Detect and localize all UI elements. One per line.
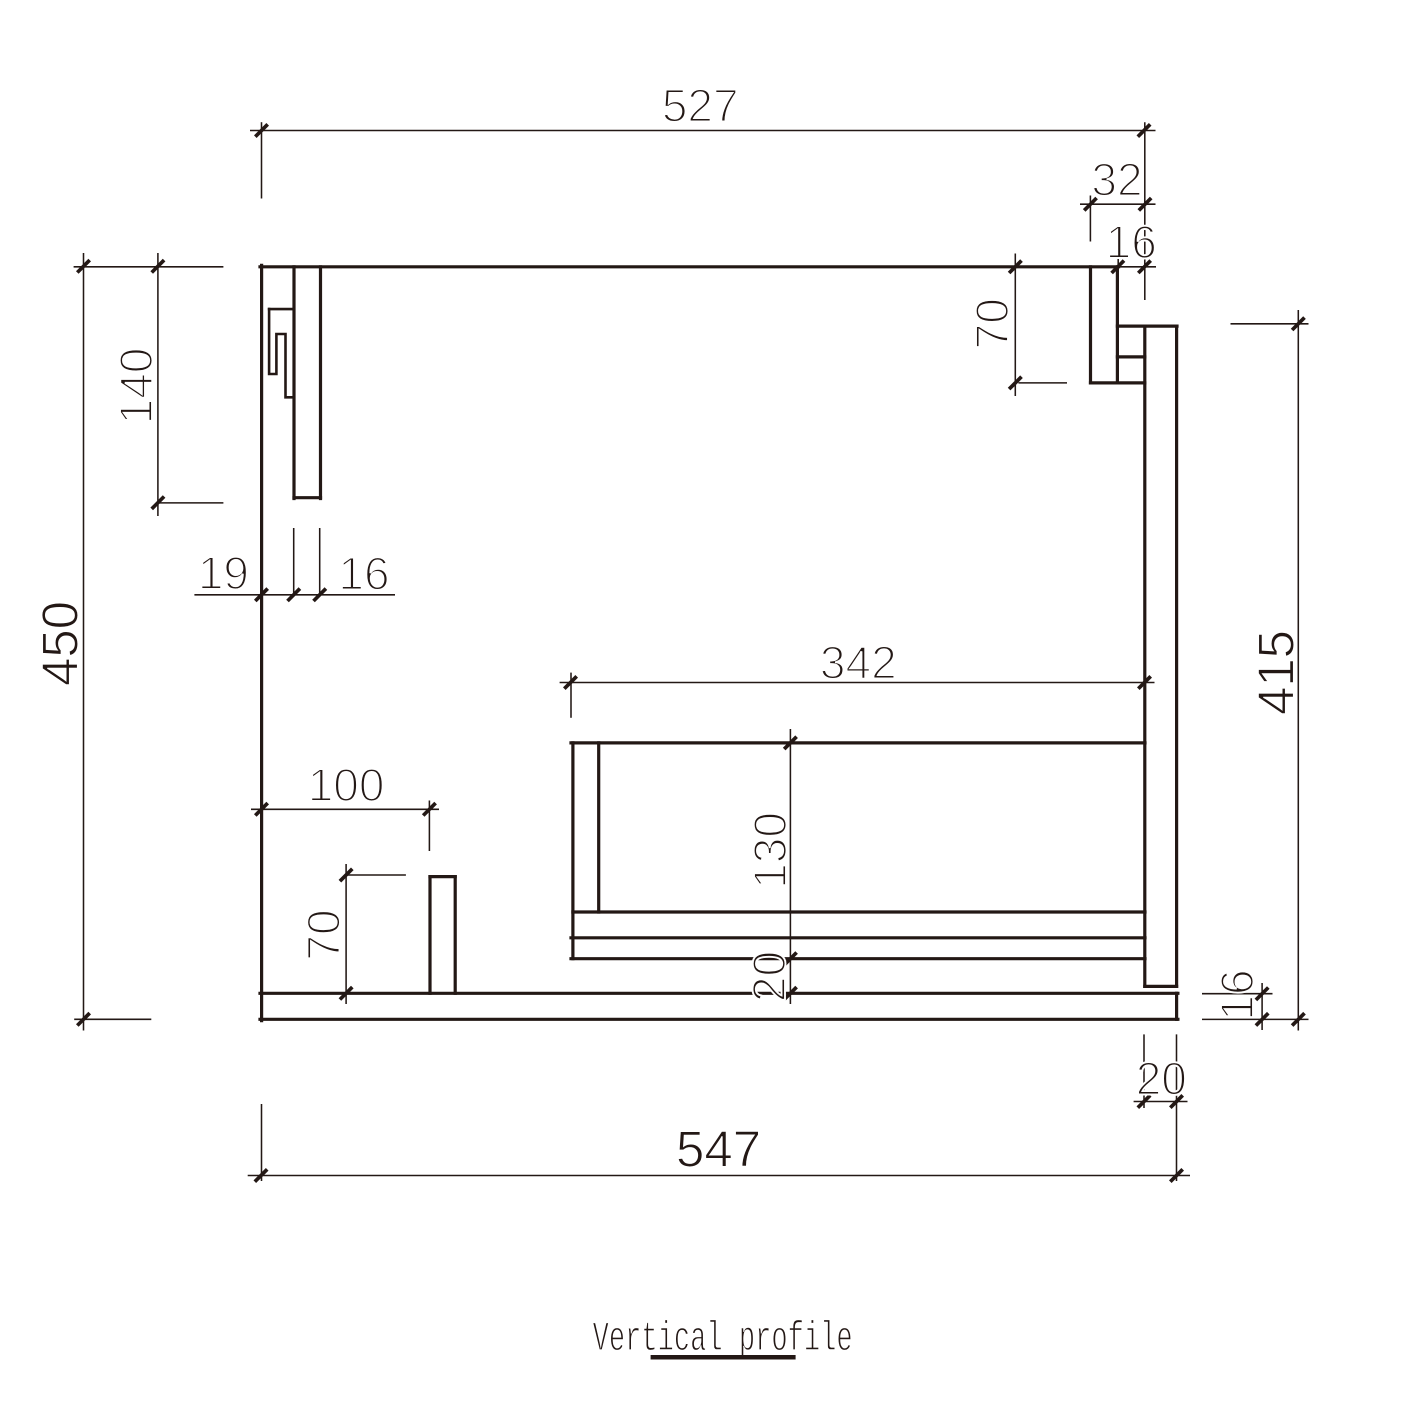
svg-text:100: 100 [308,759,385,811]
svg-text:547: 547 [676,1120,761,1177]
svg-text:16: 16 [338,548,389,600]
svg-text:527: 527 [662,80,739,132]
svg-text:70: 70 [298,909,350,960]
svg-text:20: 20 [1136,1053,1187,1105]
svg-text:19: 19 [198,547,249,599]
svg-text:415: 415 [1248,630,1305,715]
svg-text:20: 20 [743,951,795,1002]
svg-text:130: 130 [744,812,796,889]
svg-text:32: 32 [1091,154,1142,206]
svg-text:16: 16 [1211,969,1263,1020]
svg-text:70: 70 [966,298,1018,349]
svg-text:16: 16 [1106,216,1157,268]
svg-text:140: 140 [110,348,162,425]
svg-text:342: 342 [820,637,897,689]
svg-text:450: 450 [32,601,89,686]
